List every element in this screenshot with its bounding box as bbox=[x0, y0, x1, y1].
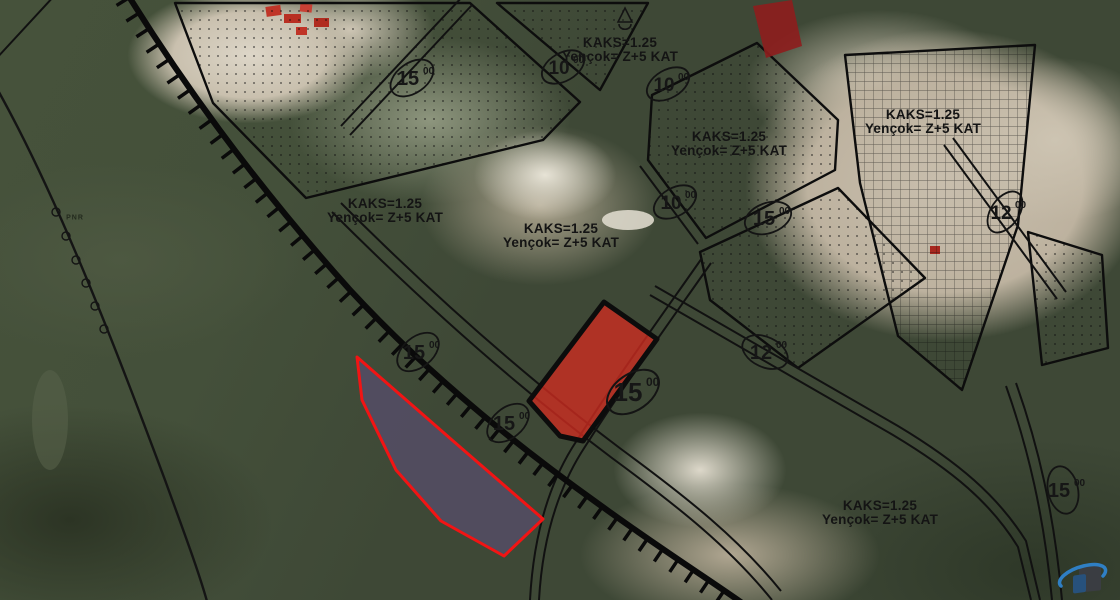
kaks-value: KAKS=1.25 bbox=[671, 130, 787, 144]
svg-text:15: 15 bbox=[614, 377, 643, 407]
svg-text:00: 00 bbox=[423, 66, 435, 77]
zoning-label: KAKS=1.25 Yençok= Z+5 KAT bbox=[671, 130, 787, 158]
svg-text:00: 00 bbox=[678, 72, 690, 83]
zoning-label: KAKS=1.25 Yençok= Z+5 KAT bbox=[865, 108, 981, 136]
road-width-marker: 15 00 bbox=[480, 396, 536, 450]
zoning-label: KAKS=1.25 Yençok= Z+5 KAT bbox=[562, 36, 678, 64]
block-hatched-dots bbox=[1028, 232, 1108, 365]
zoning-plan-overlay: 15 00 10 00 10 00 10 00 15 00 bbox=[0, 0, 1120, 600]
kaks-value: KAKS=1.25 bbox=[503, 222, 619, 236]
svg-text:15: 15 bbox=[397, 68, 419, 90]
circle-chain bbox=[52, 208, 108, 333]
svg-text:12: 12 bbox=[750, 342, 772, 364]
kaks-value: KAKS=1.25 bbox=[865, 108, 981, 122]
yencok-value: Yençok= Z+5 KAT bbox=[562, 50, 678, 64]
zoning-label: KAKS=1.25 Yençok= Z+5 KAT bbox=[327, 197, 443, 225]
svg-text:00: 00 bbox=[429, 340, 441, 351]
yencok-value: Yençok= Z+5 KAT bbox=[503, 236, 619, 250]
yencok-value: Yençok= Z+5 KAT bbox=[822, 513, 938, 527]
zoning-label: KAKS=1.25 Yençok= Z+5 KAT bbox=[503, 222, 619, 250]
left-boundary bbox=[0, 85, 208, 600]
svg-text:15: 15 bbox=[753, 208, 775, 230]
zoning-label: KAKS=1.25 Yençok= Z+5 KAT bbox=[822, 499, 938, 527]
yencok-value: Yençok= Z+5 KAT bbox=[671, 144, 787, 158]
svg-text:10: 10 bbox=[653, 75, 674, 96]
svg-text:00: 00 bbox=[1015, 200, 1027, 211]
svg-text:15: 15 bbox=[403, 342, 425, 364]
kaks-value: KAKS=1.25 bbox=[562, 36, 678, 50]
svg-text:00: 00 bbox=[776, 340, 788, 351]
block-hatched-dots bbox=[175, 3, 580, 198]
logo-cube-face-icon bbox=[1073, 574, 1086, 594]
parcel-highlight-red[interactable] bbox=[529, 302, 657, 441]
svg-text:12: 12 bbox=[990, 203, 1011, 224]
kaks-value: KAKS=1.25 bbox=[822, 499, 938, 513]
svg-text:00: 00 bbox=[646, 375, 660, 389]
ground-text-label: PNR bbox=[66, 215, 84, 222]
yencok-value: Yençok= Z+5 KAT bbox=[865, 122, 981, 136]
map-viewport[interactable]: 15 00 10 00 10 00 10 00 15 00 bbox=[0, 0, 1120, 600]
svg-text:10: 10 bbox=[660, 193, 681, 214]
watermark-logo bbox=[1059, 564, 1105, 593]
kaks-value: KAKS=1.25 bbox=[327, 197, 443, 211]
svg-text:00: 00 bbox=[1074, 478, 1086, 489]
svg-text:15: 15 bbox=[493, 413, 515, 435]
yencok-value: Yençok= Z+5 KAT bbox=[327, 211, 443, 225]
svg-text:15: 15 bbox=[1048, 480, 1070, 502]
road-width-marker: 15 00 bbox=[390, 325, 446, 379]
svg-text:00: 00 bbox=[685, 190, 697, 201]
svg-text:00: 00 bbox=[519, 411, 531, 422]
svg-text:00: 00 bbox=[779, 206, 791, 217]
